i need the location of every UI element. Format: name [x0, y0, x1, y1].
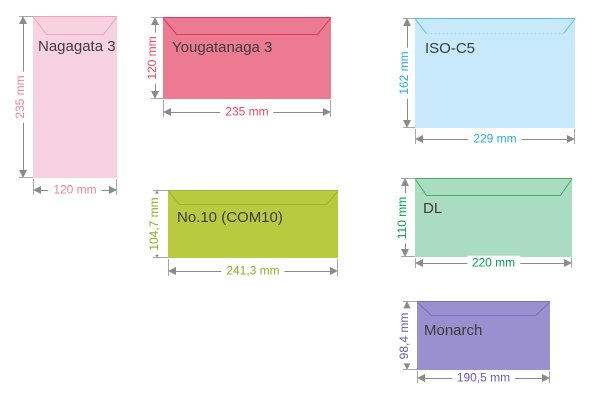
- height-dimension-label: 235 mm: [12, 71, 28, 122]
- witness-line: [571, 258, 572, 268]
- witness-line: [401, 256, 415, 257]
- envelope-flap: [415, 19, 575, 35]
- envelope-monarch: Monarch: [417, 301, 550, 370]
- envelope-label: DL: [423, 201, 442, 217]
- envelope-group-dl: DL 110 mm 220 mm: [415, 178, 572, 257]
- witness-line: [415, 258, 416, 268]
- envelope-group-iso-c5: ISO-C5 162 mm 229 mm: [415, 18, 575, 128]
- witness-line: [163, 100, 164, 117]
- witness-line: [403, 301, 417, 302]
- witness-line: [168, 259, 169, 276]
- width-dimension: 190,5 mm: [417, 374, 550, 383]
- height-dimension: 162 mm: [403, 18, 412, 128]
- width-dimension-label: 235 mm: [220, 105, 273, 119]
- witness-line: [417, 371, 418, 383]
- envelope-flap: [168, 191, 338, 206]
- width-dimension-label: 220 mm: [467, 256, 520, 270]
- width-dimension: 235 mm: [163, 108, 331, 117]
- witness-line: [19, 16, 33, 17]
- envelope-label: Yougatanaga 3: [172, 40, 272, 56]
- height-dimension-label: 98,4 mm: [396, 308, 412, 363]
- width-dimension: 220 mm: [415, 259, 572, 268]
- envelope-group-yougatanaga3: Yougatanaga 3 120 mm 235 mm: [163, 17, 331, 99]
- envelope-yougatanaga3: Yougatanaga 3: [163, 17, 331, 99]
- witness-line: [401, 178, 415, 179]
- witness-line: [403, 127, 415, 128]
- height-dimension-label: 104,7 mm: [146, 193, 162, 254]
- witness-line: [549, 371, 550, 383]
- envelope-size-diagram: Nagagata 3 235 mm 120 mm Yougatanaga 3: [0, 0, 602, 400]
- envelope-no10-com10: No.10 (COM10): [168, 190, 338, 258]
- witness-line: [151, 17, 163, 18]
- envelope-group-monarch: Monarch 98,4 mm 190,5 mm: [417, 301, 550, 370]
- witness-line: [116, 179, 117, 195]
- envelope-group-no10-com10: No.10 (COM10) 104,7 mm 241,3 mm: [168, 190, 338, 258]
- envelope-label: No.10 (COM10): [177, 210, 283, 226]
- envelope-label: Monarch: [424, 323, 482, 339]
- width-dimension-label: 229 mm: [468, 132, 521, 146]
- envelope-iso-c5: ISO-C5: [415, 18, 575, 128]
- envelope-group-nagagata3: Nagagata 3 235 mm 120 mm: [33, 16, 117, 178]
- height-dimension-label: 120 mm: [144, 32, 160, 83]
- height-dimension-label: 110 mm: [394, 192, 410, 242]
- witness-line: [151, 98, 163, 99]
- witness-line: [574, 129, 575, 144]
- width-dimension: 241,3 mm: [168, 267, 338, 276]
- envelope-flap: [33, 17, 117, 36]
- witness-line: [33, 179, 34, 195]
- width-dimension-label: 241,3 mm: [221, 264, 284, 278]
- witness-line: [153, 257, 168, 258]
- witness-line: [403, 18, 415, 19]
- envelope-nagagata3: Nagagata 3: [33, 16, 117, 178]
- height-dimension: 104,7 mm: [153, 190, 162, 258]
- height-dimension: 120 mm: [151, 17, 160, 99]
- width-dimension: 120 mm: [33, 186, 117, 195]
- envelope-flap: [417, 302, 550, 317]
- height-dimension-label: 162 mm: [396, 47, 412, 98]
- witness-line: [403, 369, 417, 370]
- width-dimension-label: 120 mm: [48, 183, 101, 197]
- witness-line: [19, 177, 33, 178]
- height-dimension: 110 mm: [401, 178, 410, 257]
- witness-line: [415, 129, 416, 144]
- envelope-label: ISO-C5: [425, 41, 475, 57]
- witness-line: [330, 100, 331, 117]
- envelope-flap: [163, 18, 331, 36]
- witness-line: [337, 259, 338, 276]
- envelope-flap: [415, 179, 572, 197]
- height-dimension: 98,4 mm: [403, 301, 412, 370]
- width-dimension-label: 190,5 mm: [452, 371, 515, 385]
- height-dimension: 235 mm: [19, 16, 28, 178]
- witness-line: [153, 190, 168, 191]
- width-dimension: 229 mm: [415, 135, 575, 144]
- envelope-label: Nagagata 3: [38, 39, 116, 55]
- envelope-dl: DL: [415, 178, 572, 257]
